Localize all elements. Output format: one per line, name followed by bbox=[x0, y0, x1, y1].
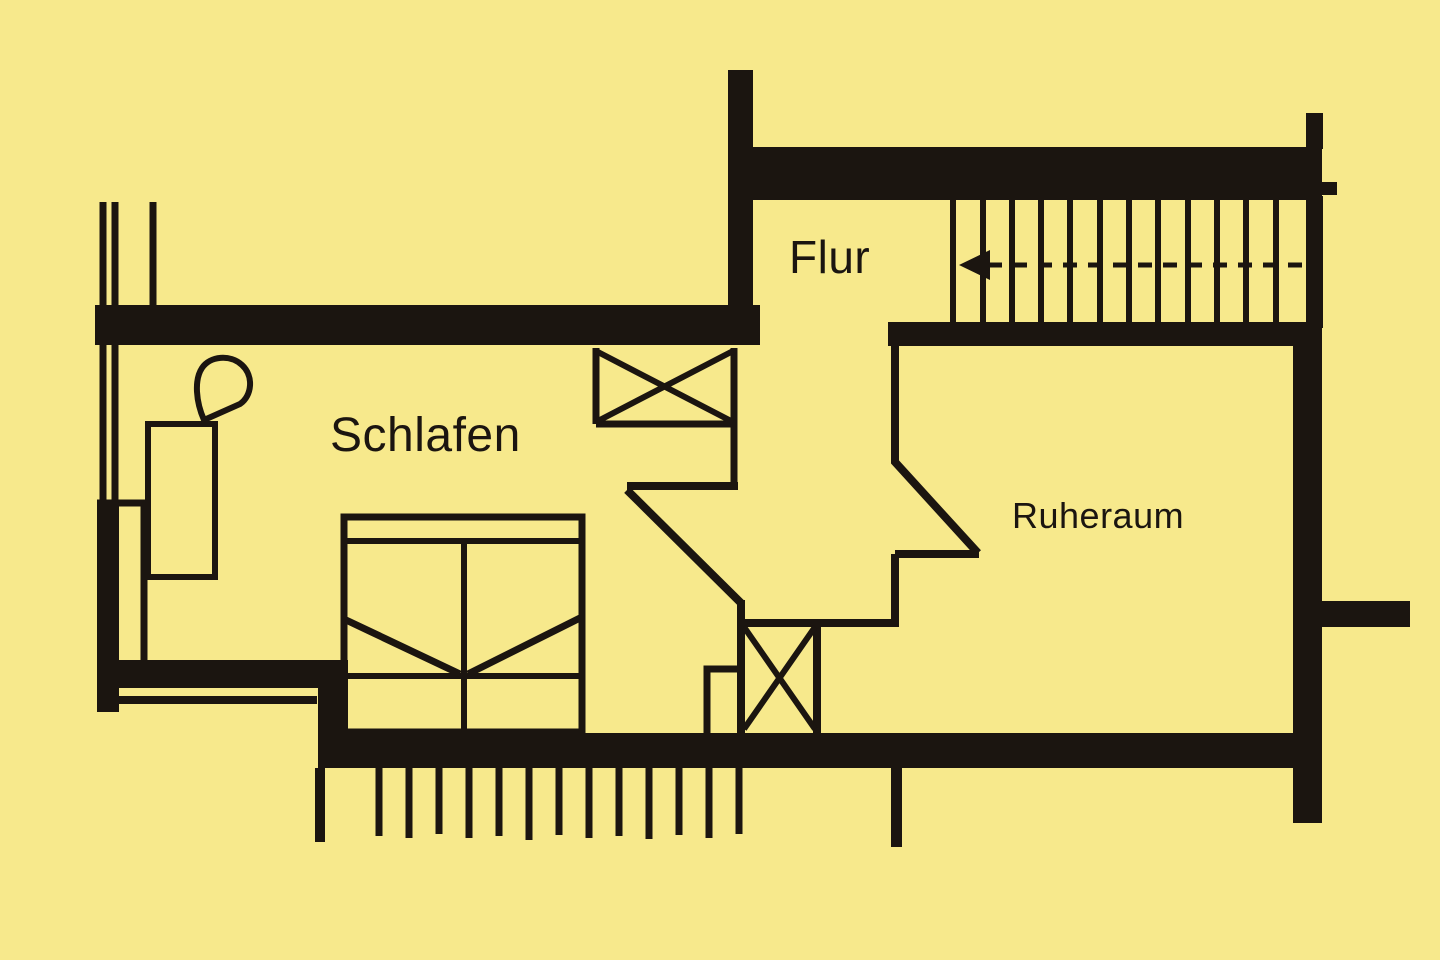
door-nook bbox=[707, 669, 740, 733]
railing-hatch bbox=[315, 768, 902, 847]
room-label-schlafen: Schlafen bbox=[330, 410, 521, 463]
wall-lip-top-right bbox=[1322, 182, 1337, 195]
wash-basin-icon bbox=[197, 358, 250, 420]
wall-stairs-east bbox=[1306, 196, 1323, 328]
schlafen-partition bbox=[627, 486, 741, 733]
wall-stub-top-right bbox=[1306, 113, 1323, 149]
wall-flur-west bbox=[728, 70, 753, 345]
railing-post-right bbox=[891, 768, 902, 847]
railing-post-left bbox=[315, 768, 325, 842]
wash-basin bbox=[148, 358, 250, 577]
ruheraum-west-wall bbox=[895, 340, 979, 627]
wall-ruheraum-east bbox=[1293, 344, 1322, 823]
chimney-lines bbox=[103, 202, 153, 305]
wall-stub-east bbox=[1322, 601, 1410, 627]
bed-icon bbox=[344, 517, 582, 732]
room-label-flur: Flur bbox=[789, 232, 870, 283]
railing-hatch-ticks-icon bbox=[379, 768, 739, 840]
ruheraum-zigzag bbox=[895, 340, 979, 627]
wall-top-left bbox=[95, 305, 760, 345]
crossed-box-lower bbox=[737, 623, 897, 733]
crossed-box-upper-frame bbox=[596, 348, 734, 487]
room-label-ruheraum: Ruheraum bbox=[1012, 496, 1184, 536]
staircase bbox=[953, 200, 1318, 327]
wall-bottom bbox=[318, 733, 1293, 768]
wall-schlafen-southwest bbox=[97, 660, 348, 688]
wall-schlafen-west-bar bbox=[97, 505, 119, 712]
partition-diagonal bbox=[627, 490, 741, 603]
wall-southwest-outer-face bbox=[110, 696, 317, 704]
crossed-box-upper bbox=[596, 348, 734, 487]
walls bbox=[95, 70, 1410, 823]
crossed-box-lower-x-icon bbox=[744, 627, 815, 729]
stair-direction-arrow-icon bbox=[959, 250, 990, 280]
floor-plan: Schlafen Flur Ruheraum bbox=[0, 0, 1440, 960]
floor-plan-drawing bbox=[0, 0, 1440, 960]
crossed-box-upper-x-icon bbox=[596, 351, 733, 422]
basin-cabinet bbox=[148, 424, 215, 577]
wall-top-right bbox=[752, 147, 1322, 200]
crossed-box-lower-frame bbox=[737, 623, 897, 733]
